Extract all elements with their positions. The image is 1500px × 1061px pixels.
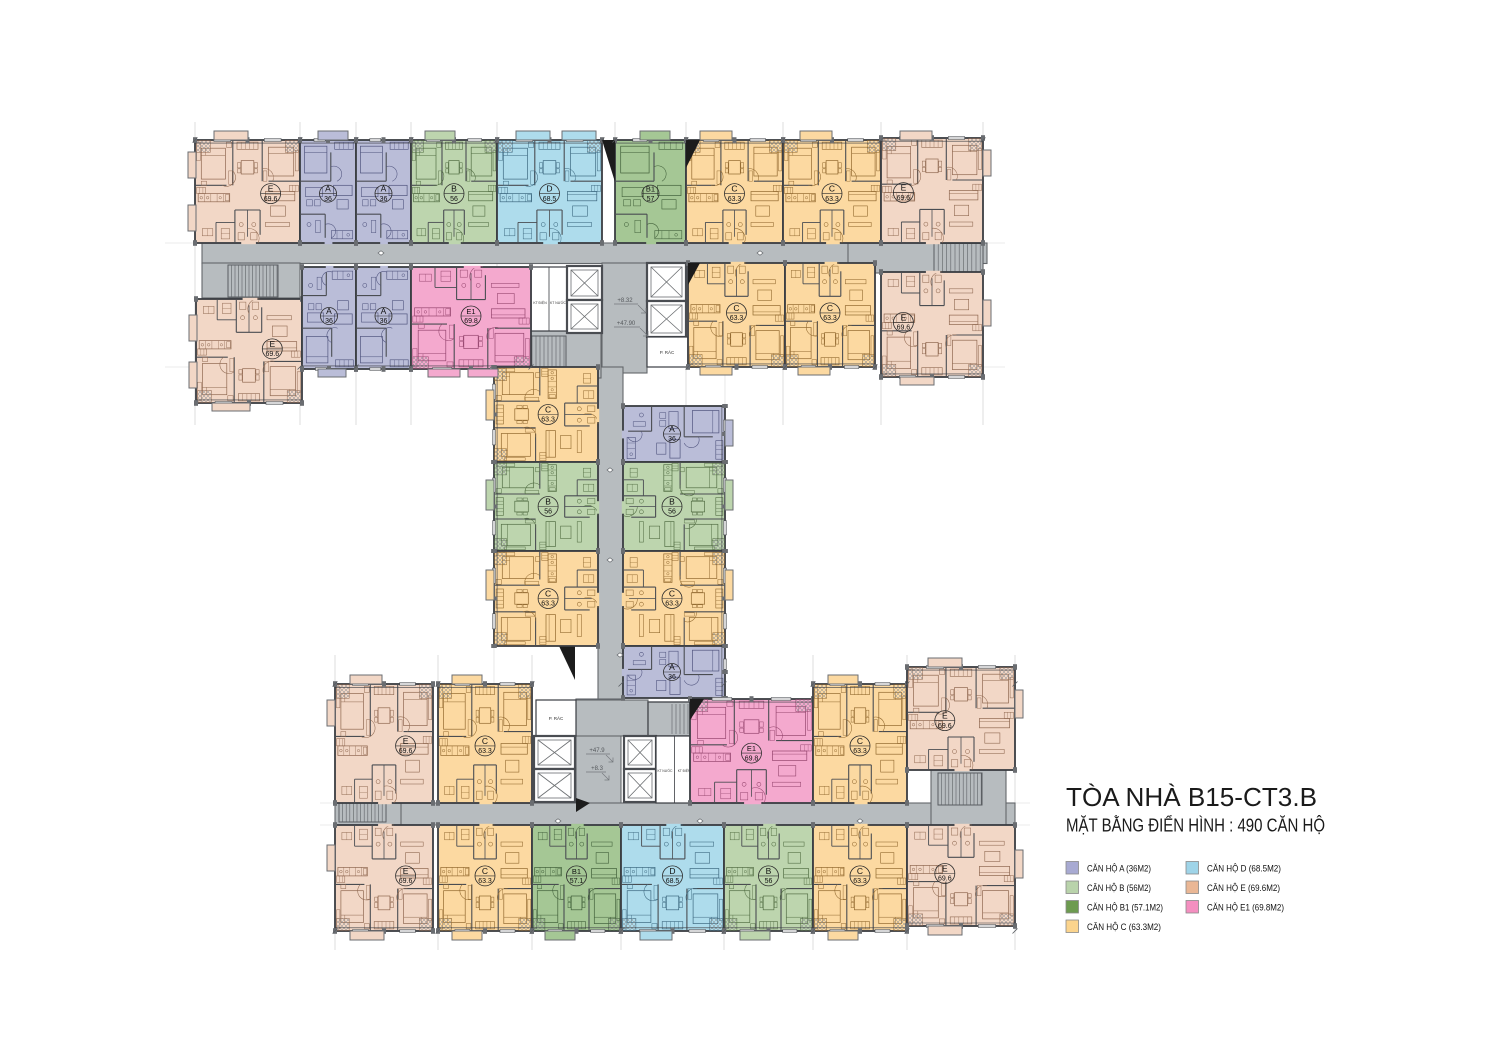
- svg-text:A: A: [325, 184, 331, 194]
- svg-text:B1: B1: [646, 185, 655, 194]
- svg-text:E: E: [268, 184, 274, 194]
- svg-text:CĂN HỘ E (69.6M2): CĂN HỘ E (69.6M2): [1207, 883, 1280, 893]
- svg-text:63.3: 63.3: [730, 315, 744, 322]
- svg-text:68.5: 68.5: [543, 196, 557, 203]
- svg-text:36: 36: [380, 196, 388, 203]
- svg-text:A: A: [669, 424, 675, 434]
- svg-text:63.3: 63.3: [665, 601, 679, 608]
- svg-text:E: E: [269, 339, 275, 349]
- svg-text:P. RÁC: P. RÁC: [660, 349, 675, 355]
- svg-text:CĂN HỘ A (36M2): CĂN HỘ A (36M2): [1087, 864, 1151, 874]
- svg-text:KT NƯỚC: KT NƯỚC: [658, 768, 674, 773]
- svg-text:P. RÁC: P. RÁC: [549, 715, 564, 721]
- svg-text:56: 56: [765, 878, 773, 885]
- svg-text:63.3: 63.3: [478, 878, 492, 885]
- svg-text:69.6: 69.6: [938, 876, 952, 883]
- svg-text:69.6: 69.6: [399, 878, 413, 885]
- svg-text:E: E: [942, 711, 948, 721]
- svg-text:C: C: [545, 589, 551, 599]
- svg-text:+47.9: +47.9: [589, 748, 605, 754]
- svg-text:C: C: [482, 866, 488, 876]
- svg-text:A: A: [381, 306, 387, 316]
- svg-text:B: B: [766, 866, 772, 876]
- svg-text:63.3: 63.3: [541, 601, 555, 608]
- svg-text:36: 36: [668, 674, 676, 681]
- svg-text:E: E: [942, 864, 948, 874]
- svg-text:KT NƯỚC: KT NƯỚC: [550, 300, 566, 305]
- svg-text:B: B: [451, 184, 457, 194]
- svg-text:CĂN HỘ D (68.5M2): CĂN HỘ D (68.5M2): [1207, 864, 1281, 874]
- svg-text:56: 56: [668, 509, 676, 516]
- svg-text:69.6: 69.6: [897, 195, 911, 202]
- svg-text:+47.90: +47.90: [617, 321, 636, 327]
- svg-text:CĂN HỘ B1 (57.1M2): CĂN HỘ B1 (57.1M2): [1087, 903, 1163, 913]
- svg-text:63.3: 63.3: [478, 748, 492, 755]
- svg-text:56: 56: [450, 196, 458, 203]
- svg-text:69.8: 69.8: [464, 318, 478, 325]
- svg-text:C: C: [829, 184, 835, 194]
- svg-text:57: 57: [647, 196, 655, 203]
- svg-text:C: C: [827, 303, 833, 313]
- svg-text:36: 36: [380, 318, 388, 325]
- svg-text:C: C: [857, 866, 863, 876]
- svg-text:69.6: 69.6: [265, 351, 279, 358]
- svg-text:E: E: [901, 312, 907, 322]
- svg-text:C: C: [733, 303, 739, 313]
- svg-text:MẶT BẰNG ĐIỂN HÌNH : 490 CĂN H: MẶT BẰNG ĐIỂN HÌNH : 490 CĂN HỘ: [1066, 815, 1325, 836]
- svg-text:36: 36: [324, 196, 332, 203]
- svg-text:D: D: [669, 866, 675, 876]
- svg-text:63.3: 63.3: [853, 748, 867, 755]
- svg-text:KT ĐIỆN: KT ĐIỆN: [533, 300, 547, 305]
- svg-text:56: 56: [544, 509, 552, 516]
- svg-text:E1: E1: [747, 744, 756, 753]
- svg-text:C: C: [857, 736, 863, 746]
- svg-text:TÒA NHÀ B15-CT3.B: TÒA NHÀ B15-CT3.B: [1066, 783, 1317, 812]
- svg-text:B: B: [669, 497, 675, 507]
- svg-text:D: D: [546, 184, 552, 194]
- svg-text:63.3: 63.3: [823, 315, 837, 322]
- svg-text:36: 36: [325, 318, 333, 325]
- svg-text:CĂN HỘ B (56M2): CĂN HỘ B (56M2): [1087, 883, 1151, 893]
- svg-text:63.3: 63.3: [728, 196, 742, 203]
- svg-text:CĂN HỘ C (63.3M2): CĂN HỘ C (63.3M2): [1087, 922, 1161, 932]
- svg-text:69.8: 69.8: [745, 755, 759, 762]
- svg-text:36: 36: [668, 436, 676, 443]
- svg-text:E: E: [403, 866, 409, 876]
- svg-text:KT ĐIỆN: KT ĐIỆN: [678, 768, 691, 773]
- svg-text:A: A: [326, 306, 332, 316]
- svg-text:A: A: [381, 184, 387, 194]
- svg-text:+8.32: +8.32: [617, 298, 633, 304]
- svg-text:C: C: [482, 736, 488, 746]
- svg-text:68.5: 68.5: [666, 878, 680, 885]
- svg-text:C: C: [731, 184, 737, 194]
- svg-text:C: C: [669, 589, 675, 599]
- svg-text:+8.3: +8.3: [591, 766, 604, 772]
- svg-text:B: B: [545, 497, 551, 507]
- svg-text:E: E: [901, 183, 907, 193]
- svg-text:E: E: [403, 736, 409, 746]
- svg-text:A: A: [669, 662, 675, 672]
- svg-text:69.6: 69.6: [938, 723, 952, 730]
- svg-text:63.3: 63.3: [825, 196, 839, 203]
- svg-text:69.6: 69.6: [897, 325, 911, 332]
- svg-text:CĂN HỘ E1 (69.8M2): CĂN HỘ E1 (69.8M2): [1207, 903, 1284, 913]
- svg-text:69.6: 69.6: [399, 748, 413, 755]
- svg-text:57.1: 57.1: [570, 878, 584, 885]
- svg-text:63.3: 63.3: [541, 417, 555, 424]
- svg-text:B1: B1: [572, 867, 581, 876]
- svg-text:C: C: [545, 405, 551, 415]
- svg-text:69.6: 69.6: [264, 196, 278, 203]
- svg-text:63.3: 63.3: [853, 878, 867, 885]
- svg-text:E1: E1: [466, 307, 475, 316]
